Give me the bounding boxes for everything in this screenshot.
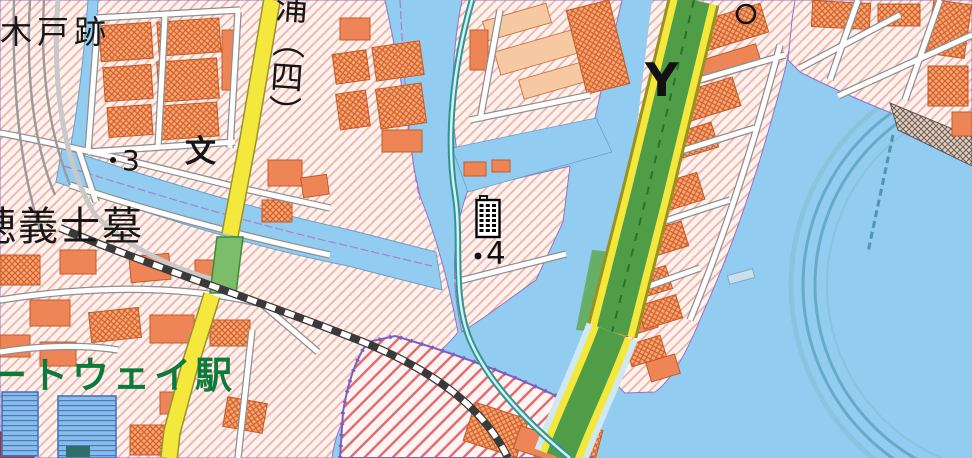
label-gateway-station: ートウェイ駅 (0, 357, 236, 394)
label-gishi-graves: 穂義士墓 (0, 207, 144, 247)
spot-height-3-value: 3 (122, 144, 140, 177)
blue-buildings (2, 392, 116, 458)
label-kido-ato: 木戸跡 (0, 16, 111, 48)
spot-height-4-value: 4 (486, 236, 506, 272)
high-rise-building-icon (477, 196, 500, 237)
fire-station-icon: Y (645, 57, 678, 103)
map-canvas[interactable]: 3 4 木戸跡 浦（四） 穂義士墓 ートウェイ駅 文 Y (0, 0, 972, 458)
school-icon: 文 (185, 137, 216, 168)
